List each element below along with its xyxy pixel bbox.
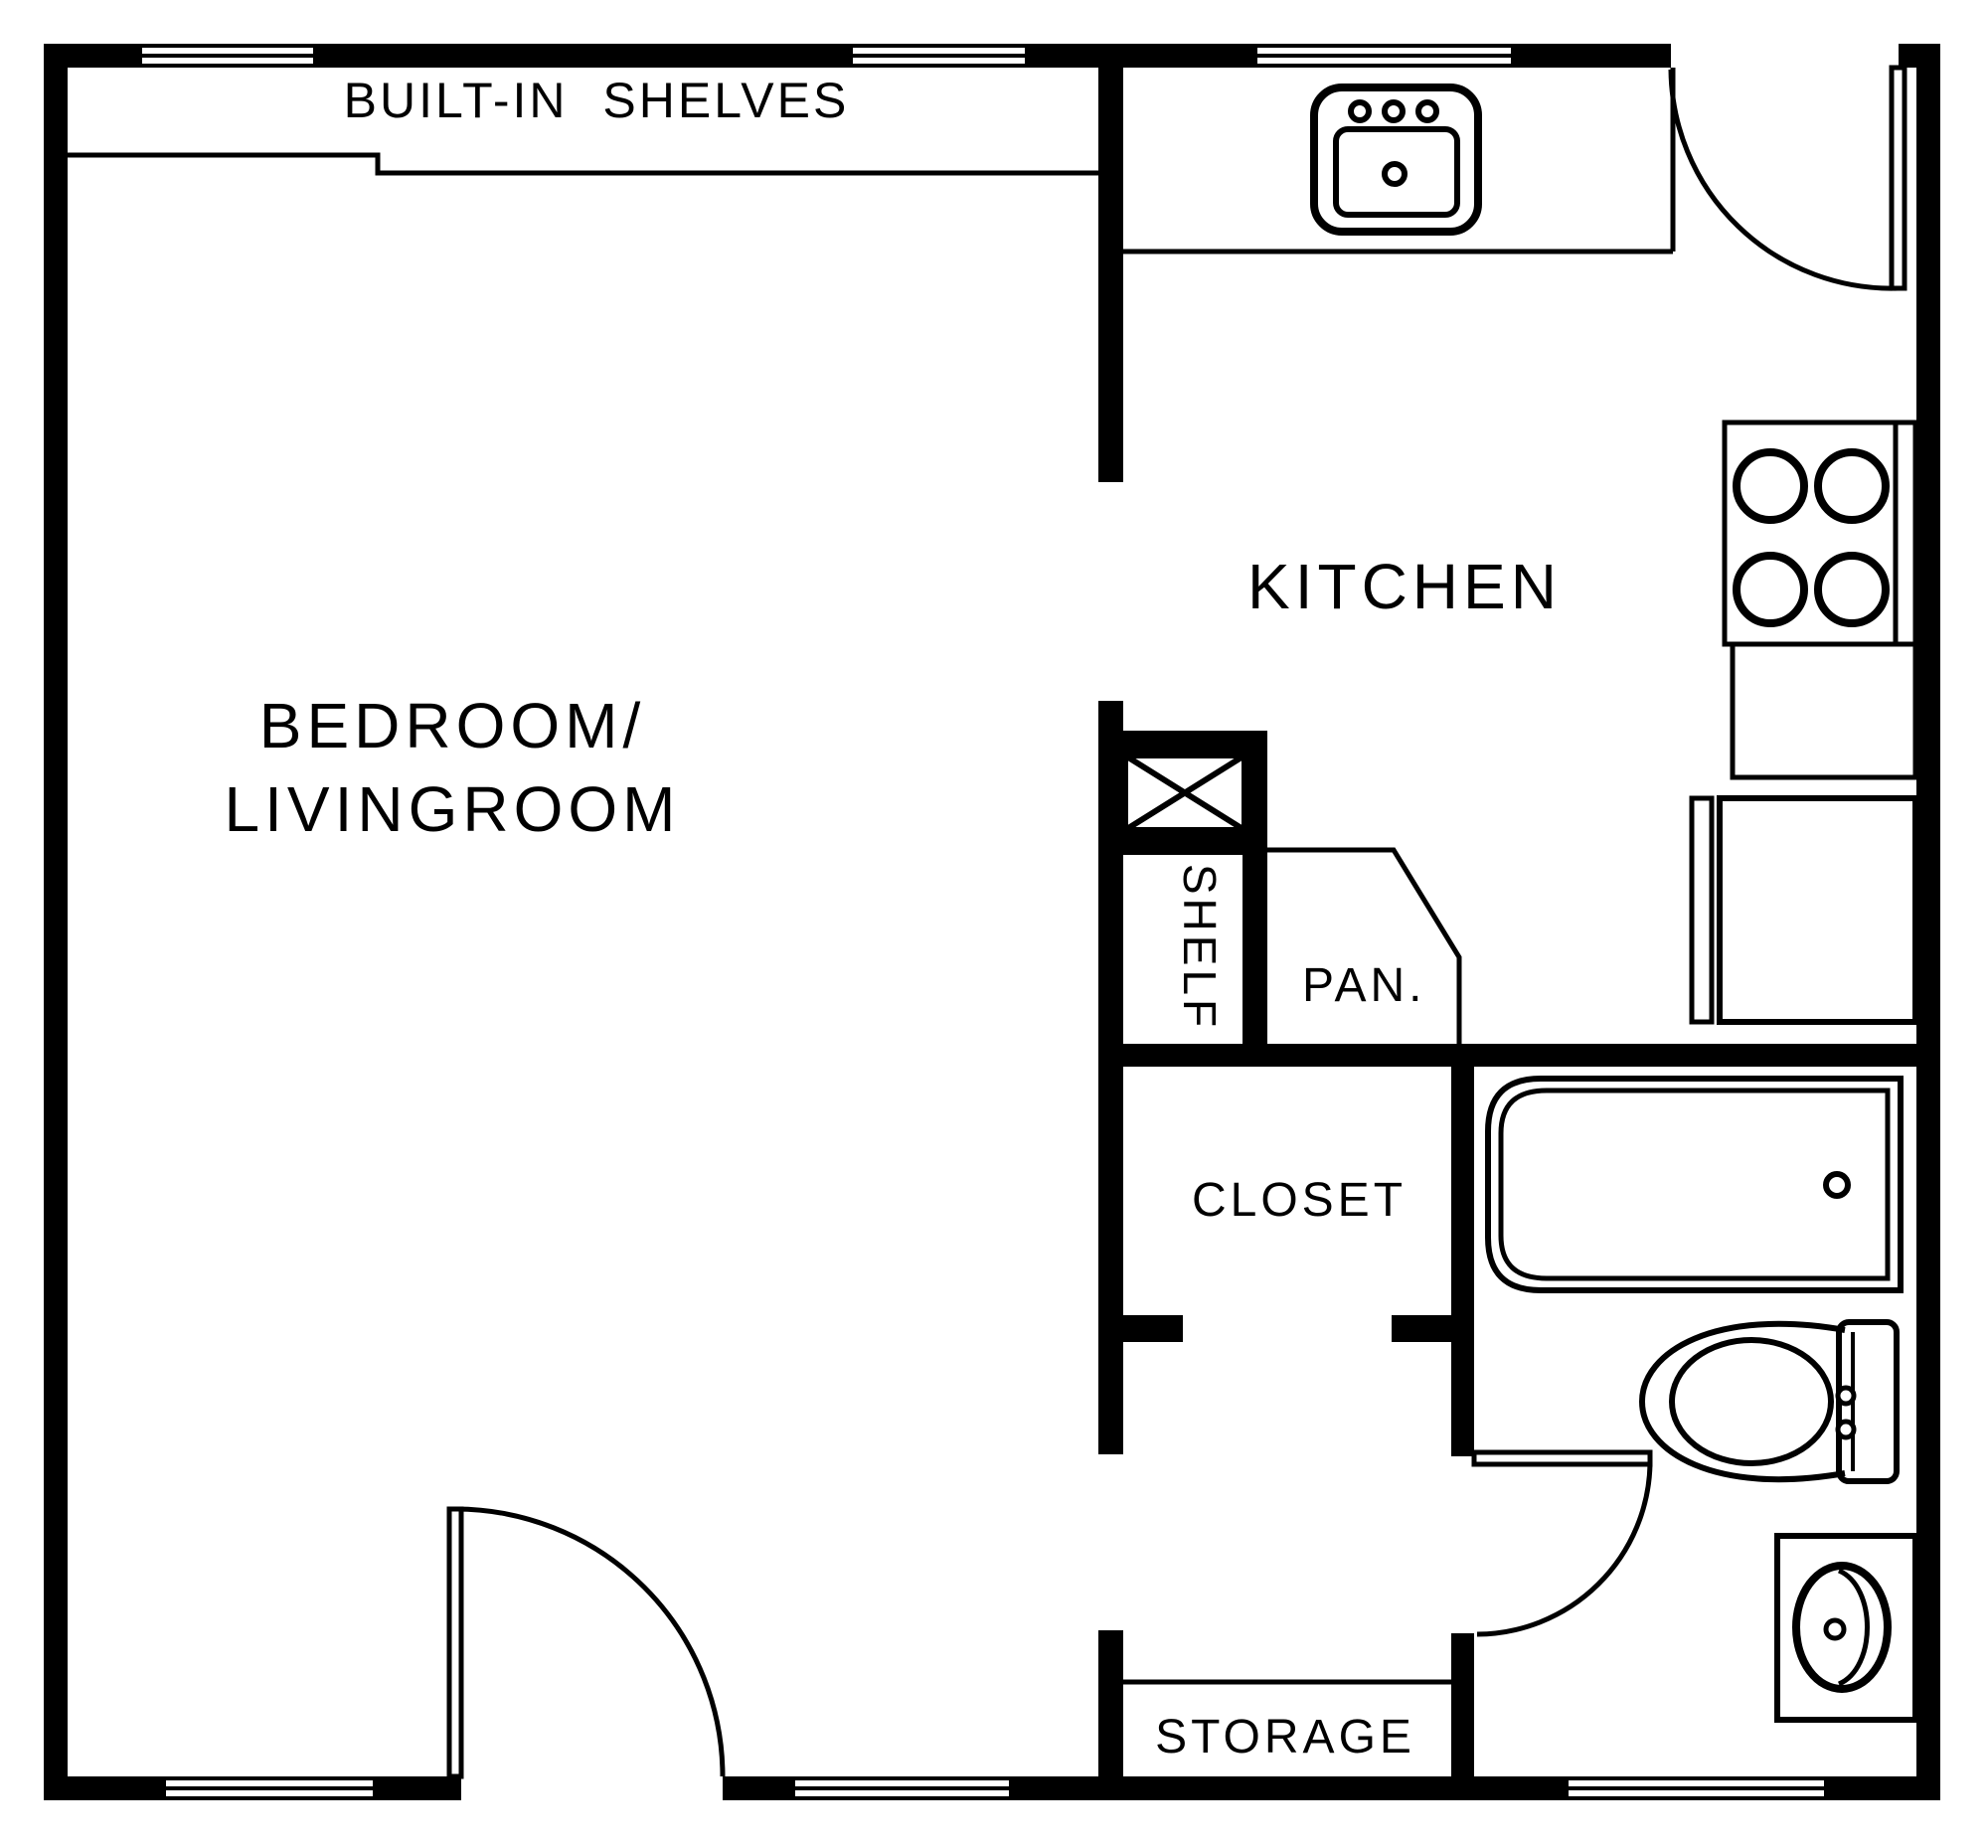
bottom-wall-segment [1824, 1776, 1916, 1800]
divider-wall-bottom-stub [1098, 1630, 1123, 1776]
bedroom-label-line1: BEDROOM/ [259, 690, 645, 761]
door-leaf [1474, 1452, 1650, 1464]
bottom-wall-segment [68, 1776, 166, 1800]
window-top-3 [1257, 43, 1511, 69]
floor-plan-drawing: BUILT-IN SHELVES KITCHEN BEDROOM/ LIVING… [0, 0, 1988, 1848]
closet-label: CLOSET [1192, 1174, 1407, 1227]
bottom-wall-segment [723, 1776, 795, 1800]
window-top-1 [142, 43, 313, 69]
toilet-bolt-icon [1838, 1422, 1854, 1437]
shelf-label: SHELF [1174, 864, 1226, 1031]
top-wall-segment [313, 44, 853, 68]
storage-label: STORAGE [1155, 1711, 1415, 1764]
window-top-2 [853, 43, 1025, 69]
window-bottom-2 [795, 1775, 1009, 1801]
bathroom-closet-top-wall [1098, 1044, 1916, 1067]
top-wall-segment [1025, 44, 1257, 68]
bottom-wall-segment [1009, 1776, 1569, 1800]
kitchen-label: KITCHEN [1247, 551, 1562, 622]
bathroom-left-wall-upper [1451, 1067, 1474, 1456]
door-leaf [449, 1509, 461, 1776]
xbox-bottom-wall [1123, 830, 1244, 855]
door-leaf [1892, 68, 1905, 288]
right-wall [1916, 44, 1940, 1800]
toilet-bolt-icon [1838, 1388, 1854, 1404]
left-wall [44, 44, 68, 1800]
kitchen-divider-wall-upper [1098, 68, 1123, 482]
closet-door-left-jamb [1123, 1315, 1183, 1342]
bathroom-left-wall-lower [1451, 1633, 1474, 1776]
kitchen-divider-wall-lower [1098, 701, 1123, 1454]
bedroom-label-line2: LIVINGROOM [225, 773, 681, 845]
built-in-shelves-label: BUILT-IN SHELVES [344, 73, 850, 128]
top-wall-segment [1511, 44, 1671, 68]
closet-door-right-jamb [1392, 1315, 1451, 1342]
bottom-wall-segment [373, 1776, 461, 1800]
floor-plan-page: BUILT-IN SHELVES KITCHEN BEDROOM/ LIVING… [0, 0, 1988, 1848]
window-bottom-1 [166, 1775, 373, 1801]
pantry-label: PAN. [1302, 959, 1425, 1012]
window-bottom-3 [1569, 1775, 1824, 1801]
